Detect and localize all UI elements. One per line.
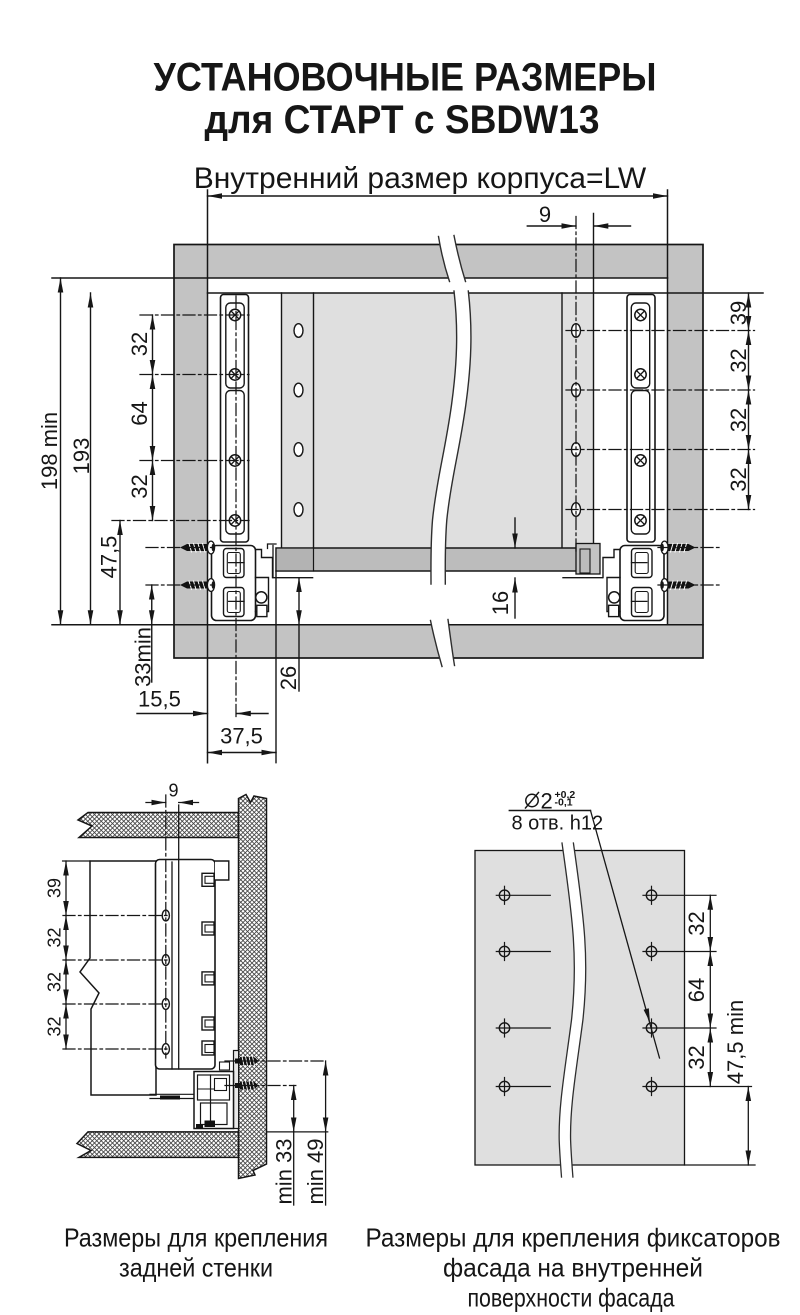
svg-text:Размеры для крепления фиксатор: Размеры для крепления фиксаторов: [366, 1223, 781, 1253]
svg-text:8 отв. h12: 8 отв. h12: [512, 813, 604, 835]
svg-text:32: 32: [684, 1045, 709, 1069]
svg-text:32: 32: [45, 927, 65, 947]
svg-text:39: 39: [726, 301, 751, 325]
svg-text:32: 32: [684, 911, 709, 935]
svg-text:задней стенки: задней стенки: [119, 1253, 273, 1283]
svg-text:16: 16: [488, 591, 513, 615]
svg-text:26: 26: [276, 666, 301, 690]
svg-text:32: 32: [726, 408, 751, 432]
svg-text:32: 32: [726, 348, 751, 372]
svg-text:фасада на внутренней: фасада на внутренней: [443, 1253, 703, 1283]
svg-text:32: 32: [45, 1016, 65, 1036]
svg-text:2: 2: [541, 789, 553, 814]
svg-text:32: 32: [726, 467, 751, 491]
svg-text:9: 9: [168, 781, 178, 801]
svg-text:9: 9: [539, 202, 551, 227]
svg-text:64: 64: [684, 978, 709, 1002]
svg-text:УСТАНОВОЧНЫЕ РАЗМЕРЫ: УСТАНОВОЧНЫЕ РАЗМЕРЫ: [154, 56, 657, 100]
svg-text:32: 32: [127, 474, 152, 498]
svg-text:32: 32: [45, 972, 65, 992]
svg-text:min 49: min 49: [303, 1138, 328, 1204]
svg-text:39: 39: [45, 878, 65, 898]
svg-text:Внутренний размер корпуса=LW: Внутренний размер корпуса=LW: [194, 162, 647, 195]
svg-text:47,5: 47,5: [97, 536, 122, 579]
svg-text:64: 64: [127, 401, 152, 425]
svg-text:198 min: 198 min: [37, 412, 62, 490]
svg-text:37,5: 37,5: [220, 724, 263, 749]
svg-text:поверхности фасада: поверхности фасада: [468, 1283, 675, 1313]
svg-text:для СТАРТ с SBDW13: для СТАРТ с SBDW13: [205, 98, 600, 142]
svg-text:-0,1: -0,1: [555, 797, 573, 809]
svg-text:47,5 min: 47,5 min: [723, 1000, 748, 1084]
svg-text:15,5: 15,5: [138, 687, 181, 712]
svg-text:Размеры для крепления: Размеры для крепления: [64, 1223, 328, 1253]
svg-text:32: 32: [127, 332, 152, 356]
svg-text:min 33: min 33: [272, 1138, 297, 1204]
